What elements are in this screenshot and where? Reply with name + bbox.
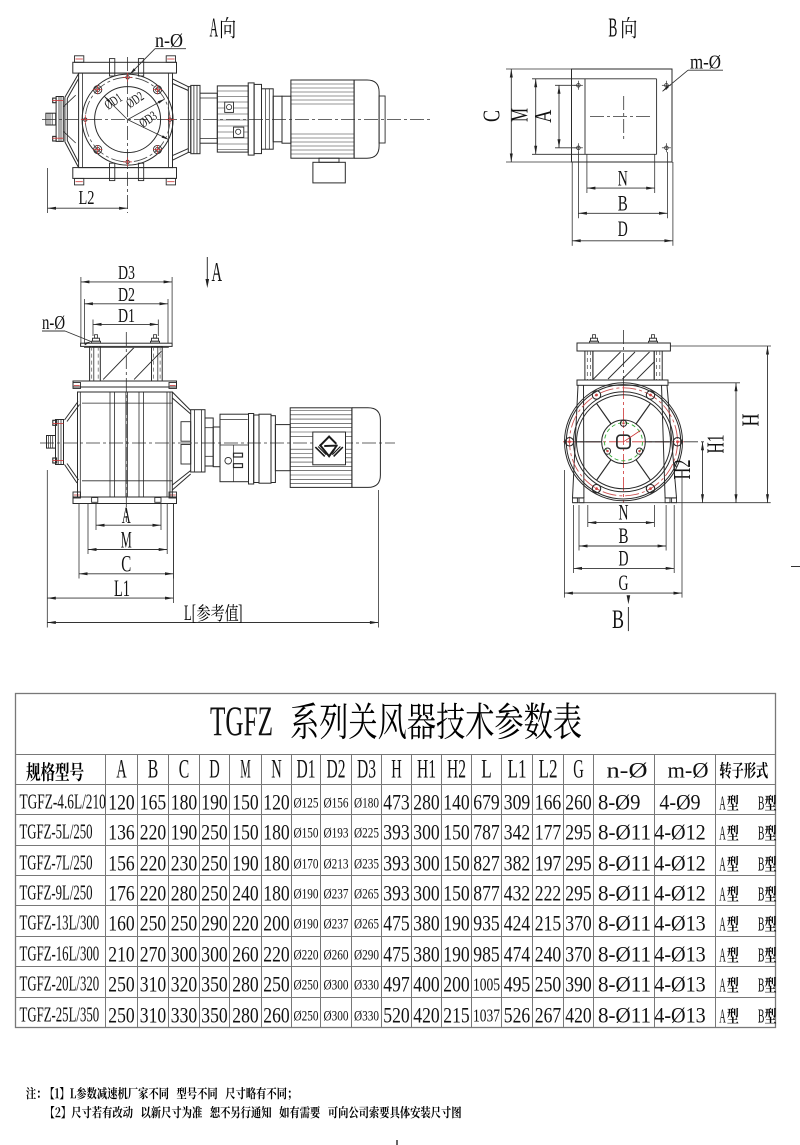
svg-text:TGFZ-9L/250: TGFZ-9L/250 bbox=[20, 880, 93, 904]
svg-text:260: 260 bbox=[565, 789, 591, 814]
svg-text:4-Ø12: 4-Ø12 bbox=[654, 850, 706, 875]
svg-text:H: H bbox=[391, 754, 402, 784]
svg-text:190: 190 bbox=[201, 789, 227, 814]
svg-text:4-Ø13: 4-Ø13 bbox=[654, 910, 706, 935]
svg-text:Ø300: Ø300 bbox=[324, 977, 349, 993]
svg-text:Ø250: Ø250 bbox=[294, 977, 319, 993]
svg-text:140: 140 bbox=[443, 789, 469, 814]
svg-text:A: A bbox=[122, 503, 131, 528]
svg-text:432: 432 bbox=[504, 880, 530, 905]
svg-text:Ø225: Ø225 bbox=[354, 825, 379, 841]
svg-text:250: 250 bbox=[263, 971, 289, 996]
svg-text:8-Ø11: 8-Ø11 bbox=[598, 971, 651, 996]
svg-text:8-Ø11: 8-Ø11 bbox=[598, 910, 651, 935]
svg-text:Ø265: Ø265 bbox=[354, 886, 379, 902]
svg-text:Ø250: Ø250 bbox=[294, 1008, 319, 1024]
svg-text:A: A bbox=[719, 822, 726, 844]
svg-text:H2: H2 bbox=[447, 754, 466, 784]
svg-text:Ø290: Ø290 bbox=[354, 947, 379, 963]
svg-text:250: 250 bbox=[108, 1002, 134, 1027]
svg-text:220: 220 bbox=[140, 819, 166, 844]
svg-text:TGFZ-5L/250: TGFZ-5L/250 bbox=[20, 819, 93, 843]
svg-text:475: 475 bbox=[383, 941, 409, 966]
svg-text:B: B bbox=[758, 853, 765, 875]
svg-text:L[: L[ bbox=[184, 600, 196, 625]
svg-text:180: 180 bbox=[263, 850, 289, 875]
svg-text:166: 166 bbox=[535, 789, 561, 814]
svg-text:B: B bbox=[758, 1005, 765, 1027]
svg-text:B: B bbox=[758, 822, 765, 844]
svg-text:A: A bbox=[719, 913, 726, 935]
svg-text:160: 160 bbox=[108, 910, 134, 935]
svg-text:TGFZ-13L/300: TGFZ-13L/300 bbox=[20, 910, 100, 934]
svg-text:C: C bbox=[179, 754, 190, 784]
svg-text:250: 250 bbox=[535, 971, 561, 996]
svg-text:260: 260 bbox=[232, 941, 258, 966]
svg-text:8-Ø11: 8-Ø11 bbox=[598, 819, 651, 844]
svg-text:H: H bbox=[739, 414, 765, 427]
svg-text:300: 300 bbox=[201, 941, 227, 966]
svg-text:4-Ø9: 4-Ø9 bbox=[659, 789, 700, 814]
svg-text:B: B bbox=[758, 913, 765, 935]
svg-text:M: M bbox=[121, 528, 132, 553]
svg-text:370: 370 bbox=[565, 941, 591, 966]
svg-text:156: 156 bbox=[108, 850, 134, 875]
svg-text:Ø237: Ø237 bbox=[324, 886, 349, 902]
svg-text:B: B bbox=[618, 190, 628, 215]
svg-text:m-Ø: m-Ø bbox=[668, 758, 709, 783]
svg-text:H1: H1 bbox=[704, 435, 730, 454]
svg-text:Ø330: Ø330 bbox=[354, 1008, 379, 1024]
svg-text:190: 190 bbox=[443, 941, 469, 966]
svg-text:497: 497 bbox=[383, 971, 409, 996]
svg-text:215: 215 bbox=[443, 1002, 469, 1027]
svg-text:220: 220 bbox=[140, 850, 166, 875]
svg-text:1005: 1005 bbox=[473, 974, 500, 994]
svg-text:787: 787 bbox=[473, 819, 499, 844]
svg-text:350: 350 bbox=[201, 1002, 227, 1027]
svg-text:473: 473 bbox=[383, 789, 409, 814]
svg-text:L1: L1 bbox=[508, 754, 527, 784]
svg-text:A: A bbox=[210, 12, 219, 42]
svg-text:420: 420 bbox=[565, 1002, 591, 1027]
svg-text:120: 120 bbox=[263, 789, 289, 814]
svg-text:n-Ø: n-Ø bbox=[607, 758, 648, 783]
svg-text:380: 380 bbox=[413, 941, 439, 966]
svg-text:D: D bbox=[619, 546, 629, 571]
svg-text:Ø193: Ø193 bbox=[324, 825, 349, 841]
svg-text:TGFZ-25L/350: TGFZ-25L/350 bbox=[20, 1002, 100, 1026]
svg-text:180: 180 bbox=[263, 819, 289, 844]
svg-text:Ø156: Ø156 bbox=[324, 795, 349, 811]
svg-text:TGFZ-16L/300: TGFZ-16L/300 bbox=[20, 941, 100, 965]
svg-text:250: 250 bbox=[201, 850, 227, 875]
svg-text:C: C bbox=[480, 110, 506, 122]
svg-text:Ø190: Ø190 bbox=[294, 886, 319, 902]
svg-text:Ø180: Ø180 bbox=[354, 795, 379, 811]
svg-text:330: 330 bbox=[171, 1002, 197, 1027]
svg-text:Ø150: Ø150 bbox=[294, 825, 319, 841]
svg-text:220: 220 bbox=[263, 941, 289, 966]
svg-text:1037: 1037 bbox=[473, 1005, 500, 1025]
svg-text:280: 280 bbox=[413, 789, 439, 814]
svg-text:495: 495 bbox=[504, 971, 530, 996]
svg-text:176: 176 bbox=[108, 880, 134, 905]
svg-text:197: 197 bbox=[535, 850, 561, 875]
svg-text:C: C bbox=[121, 552, 131, 577]
svg-text:TGFZ-7L/250: TGFZ-7L/250 bbox=[20, 850, 93, 874]
svg-text:393: 393 bbox=[383, 819, 409, 844]
svg-text:180: 180 bbox=[263, 880, 289, 905]
svg-text:120: 120 bbox=[108, 789, 134, 814]
svg-text:D2: D2 bbox=[327, 754, 346, 784]
svg-text:290: 290 bbox=[201, 910, 227, 935]
svg-text:390: 390 bbox=[565, 971, 591, 996]
svg-text:TGFZ-20L/320: TGFZ-20L/320 bbox=[20, 971, 100, 995]
svg-text:Ø213: Ø213 bbox=[324, 856, 349, 872]
svg-text:679: 679 bbox=[473, 789, 499, 814]
svg-text:A: A bbox=[531, 109, 557, 122]
svg-text:M: M bbox=[240, 754, 251, 784]
svg-text:A: A bbox=[719, 853, 726, 875]
svg-text:150: 150 bbox=[443, 819, 469, 844]
svg-text:]: ] bbox=[238, 600, 243, 625]
svg-text:4-Ø12: 4-Ø12 bbox=[654, 880, 706, 905]
svg-text:N: N bbox=[271, 754, 282, 784]
svg-text:D1: D1 bbox=[297, 754, 316, 784]
svg-text:380: 380 bbox=[413, 910, 439, 935]
svg-text:M: M bbox=[508, 108, 534, 122]
svg-text:136: 136 bbox=[108, 819, 134, 844]
svg-text:N: N bbox=[618, 165, 628, 190]
svg-text:D1: D1 bbox=[118, 305, 135, 327]
svg-text:350: 350 bbox=[201, 971, 227, 996]
svg-text:D: D bbox=[209, 754, 220, 784]
svg-text:215: 215 bbox=[535, 910, 561, 935]
svg-text:370: 370 bbox=[565, 910, 591, 935]
svg-text:280: 280 bbox=[232, 971, 258, 996]
svg-text:H2: H2 bbox=[670, 460, 696, 480]
svg-text:210: 210 bbox=[108, 941, 134, 966]
svg-text:8-Ø11: 8-Ø11 bbox=[598, 1002, 651, 1027]
svg-text:190: 190 bbox=[232, 850, 258, 875]
svg-text:A: A bbox=[719, 792, 726, 814]
svg-text:D3: D3 bbox=[118, 262, 135, 284]
svg-text:B: B bbox=[758, 792, 765, 814]
svg-text:165: 165 bbox=[140, 789, 166, 814]
svg-text:D: D bbox=[618, 216, 628, 241]
svg-text:342: 342 bbox=[504, 819, 530, 844]
svg-text:A: A bbox=[719, 883, 726, 905]
svg-text:526: 526 bbox=[504, 1002, 530, 1027]
svg-text:G: G bbox=[619, 570, 629, 595]
svg-text:309: 309 bbox=[504, 789, 530, 814]
svg-text:827: 827 bbox=[473, 850, 499, 875]
svg-text:250: 250 bbox=[108, 971, 134, 996]
svg-text:250: 250 bbox=[201, 819, 227, 844]
svg-text:Ø260: Ø260 bbox=[324, 947, 349, 963]
svg-text:150: 150 bbox=[232, 789, 258, 814]
svg-text:150: 150 bbox=[443, 850, 469, 875]
svg-text:Ø170: Ø170 bbox=[294, 856, 319, 872]
svg-text:240: 240 bbox=[232, 880, 258, 905]
svg-text:475: 475 bbox=[383, 910, 409, 935]
svg-text:Ø190: Ø190 bbox=[294, 916, 319, 932]
svg-text:267: 267 bbox=[535, 1002, 561, 1027]
svg-text:320: 320 bbox=[171, 971, 197, 996]
svg-text:300: 300 bbox=[413, 880, 439, 905]
svg-text:Ø265: Ø265 bbox=[354, 916, 379, 932]
svg-text:260: 260 bbox=[263, 1002, 289, 1027]
svg-text:150: 150 bbox=[443, 880, 469, 905]
svg-text:935: 935 bbox=[473, 910, 499, 935]
svg-text:D3: D3 bbox=[357, 754, 376, 784]
svg-text:220: 220 bbox=[232, 910, 258, 935]
svg-text:A: A bbox=[719, 944, 726, 966]
svg-text:310: 310 bbox=[140, 971, 166, 996]
svg-text:A: A bbox=[719, 1005, 726, 1027]
svg-text:177: 177 bbox=[535, 819, 561, 844]
svg-text:Ø300: Ø300 bbox=[324, 1008, 349, 1024]
svg-text:4-Ø12: 4-Ø12 bbox=[654, 819, 706, 844]
svg-text:393: 393 bbox=[383, 880, 409, 905]
svg-text:Ø125: Ø125 bbox=[294, 795, 319, 811]
svg-text:L: L bbox=[481, 754, 492, 784]
svg-text:222: 222 bbox=[535, 880, 561, 905]
svg-text:295: 295 bbox=[565, 819, 591, 844]
svg-text:150: 150 bbox=[232, 819, 258, 844]
svg-text:N: N bbox=[619, 500, 629, 525]
svg-text:300: 300 bbox=[413, 850, 439, 875]
svg-text:250: 250 bbox=[201, 880, 227, 905]
svg-text:295: 295 bbox=[565, 880, 591, 905]
svg-text:300: 300 bbox=[171, 941, 197, 966]
svg-text:B: B bbox=[758, 883, 765, 905]
svg-text:L2: L2 bbox=[539, 754, 558, 784]
svg-text:474: 474 bbox=[504, 941, 530, 966]
svg-text:200: 200 bbox=[263, 910, 289, 935]
svg-text:8-Ø11: 8-Ø11 bbox=[598, 941, 651, 966]
svg-text:420: 420 bbox=[413, 1002, 439, 1027]
svg-text:230: 230 bbox=[171, 850, 197, 875]
svg-text:200: 200 bbox=[443, 971, 469, 996]
svg-text:180: 180 bbox=[171, 789, 197, 814]
svg-text:240: 240 bbox=[535, 941, 561, 966]
svg-text:877: 877 bbox=[473, 880, 499, 905]
svg-text:985: 985 bbox=[473, 941, 499, 966]
svg-text:L1: L1 bbox=[114, 576, 130, 601]
svg-text:190: 190 bbox=[443, 910, 469, 935]
svg-text:4-Ø13: 4-Ø13 bbox=[654, 941, 706, 966]
svg-text:424: 424 bbox=[504, 910, 530, 935]
svg-text:280: 280 bbox=[232, 1002, 258, 1027]
svg-text:TGFZ: TGFZ bbox=[210, 700, 273, 746]
svg-text:Ø330: Ø330 bbox=[354, 977, 379, 993]
svg-text:250: 250 bbox=[140, 910, 166, 935]
svg-text:A: A bbox=[719, 974, 726, 996]
svg-text:8-Ø11: 8-Ø11 bbox=[598, 880, 651, 905]
svg-text:H1: H1 bbox=[417, 754, 436, 784]
svg-text:A: A bbox=[212, 257, 223, 287]
svg-text:B: B bbox=[148, 754, 159, 784]
svg-text:B: B bbox=[758, 944, 765, 966]
svg-text:8-Ø9: 8-Ø9 bbox=[598, 789, 640, 814]
svg-text:400: 400 bbox=[413, 971, 439, 996]
svg-text:382: 382 bbox=[504, 850, 530, 875]
svg-text:220: 220 bbox=[140, 880, 166, 905]
svg-text:8-Ø11: 8-Ø11 bbox=[598, 850, 651, 875]
svg-text:Ø237: Ø237 bbox=[324, 916, 349, 932]
svg-text:4-Ø13: 4-Ø13 bbox=[654, 1002, 706, 1027]
svg-text:520: 520 bbox=[383, 1002, 409, 1027]
svg-text:TGFZ-4.6L/210: TGFZ-4.6L/210 bbox=[20, 789, 106, 813]
svg-text:Ø235: Ø235 bbox=[354, 856, 379, 872]
svg-text:D2: D2 bbox=[118, 284, 135, 306]
svg-text:250: 250 bbox=[171, 910, 197, 935]
svg-text:295: 295 bbox=[565, 850, 591, 875]
svg-text:B: B bbox=[758, 974, 765, 996]
svg-text:310: 310 bbox=[140, 1002, 166, 1027]
svg-text:B: B bbox=[619, 523, 629, 548]
svg-text:A: A bbox=[116, 754, 127, 784]
svg-text:B: B bbox=[612, 605, 624, 634]
svg-text:4-Ø13: 4-Ø13 bbox=[654, 971, 706, 996]
svg-text:280: 280 bbox=[171, 880, 197, 905]
svg-text:B: B bbox=[608, 12, 617, 42]
svg-text:190: 190 bbox=[171, 819, 197, 844]
svg-text:270: 270 bbox=[140, 941, 166, 966]
svg-text:300: 300 bbox=[413, 819, 439, 844]
svg-text:G: G bbox=[573, 754, 584, 784]
svg-text:L2: L2 bbox=[79, 187, 95, 209]
svg-text:Ø220: Ø220 bbox=[294, 947, 319, 963]
svg-text:393: 393 bbox=[383, 850, 409, 875]
